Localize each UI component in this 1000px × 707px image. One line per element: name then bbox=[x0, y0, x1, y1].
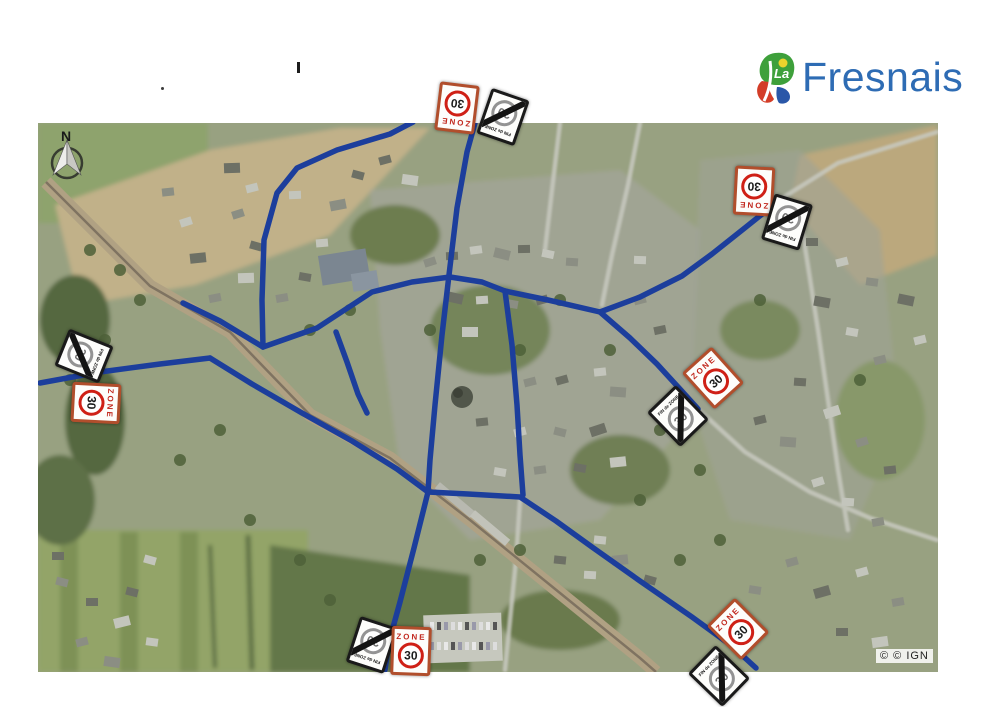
building bbox=[584, 571, 596, 580]
town-logo: La Fresnais bbox=[750, 50, 963, 106]
zone-label: ZONE bbox=[738, 200, 769, 211]
zone-label: ZONE bbox=[440, 116, 471, 129]
parked-car bbox=[493, 622, 497, 630]
building bbox=[866, 277, 879, 287]
parked-car bbox=[472, 642, 476, 650]
building bbox=[86, 598, 98, 606]
building bbox=[146, 637, 159, 647]
building bbox=[842, 498, 855, 507]
tree bbox=[634, 494, 646, 506]
building bbox=[566, 258, 579, 267]
speed-30-disc: 30 bbox=[443, 89, 472, 118]
tree bbox=[474, 554, 486, 566]
zone-30-entry-sign: ZONE30 bbox=[70, 382, 121, 425]
tree bbox=[674, 554, 686, 566]
parked-car bbox=[437, 622, 441, 630]
parked-car bbox=[479, 642, 483, 650]
building bbox=[224, 163, 240, 174]
logo-la-label: La bbox=[774, 66, 789, 81]
building bbox=[476, 296, 489, 305]
tree bbox=[84, 244, 96, 256]
tree bbox=[214, 424, 226, 436]
parked-car bbox=[444, 642, 448, 650]
building bbox=[289, 191, 301, 199]
parked-car bbox=[493, 642, 497, 650]
speed-30-disc: 30 bbox=[397, 642, 424, 669]
building bbox=[836, 628, 848, 636]
building bbox=[594, 535, 607, 544]
building bbox=[162, 187, 175, 196]
building bbox=[554, 555, 567, 564]
building bbox=[634, 256, 646, 264]
building bbox=[794, 378, 807, 387]
building bbox=[470, 245, 483, 255]
church bbox=[451, 386, 473, 408]
tree bbox=[714, 534, 726, 546]
tree bbox=[174, 454, 186, 466]
end-zone-label: FIN de ZONE bbox=[354, 652, 381, 665]
end-zone-slash bbox=[677, 393, 684, 445]
building bbox=[610, 386, 627, 397]
scan-artifact-tick bbox=[297, 62, 300, 73]
building bbox=[806, 238, 818, 246]
building bbox=[534, 465, 547, 475]
building bbox=[476, 417, 489, 426]
building bbox=[316, 238, 329, 247]
zone-label: ZONE bbox=[396, 632, 427, 642]
supermarket-parking bbox=[423, 613, 503, 664]
building bbox=[780, 436, 797, 447]
town-logo-emblem: La bbox=[750, 50, 800, 106]
zone-30-entry-sign: ZONE30 bbox=[390, 626, 432, 676]
building bbox=[518, 245, 530, 253]
building bbox=[190, 252, 207, 264]
end-zone-slash bbox=[719, 653, 726, 705]
speed-30-disc: 30 bbox=[741, 173, 768, 200]
parked-car bbox=[458, 642, 462, 650]
tree bbox=[424, 324, 436, 336]
logo-town-name: Fresnais bbox=[802, 50, 963, 104]
zone-30-entry-sign: ZONE30 bbox=[434, 81, 480, 135]
tree bbox=[244, 514, 256, 526]
building bbox=[238, 273, 254, 284]
parked-car bbox=[486, 622, 490, 630]
parked-car bbox=[486, 642, 490, 650]
parked-car bbox=[465, 642, 469, 650]
parked-car bbox=[444, 622, 448, 630]
scan-artifact-dot bbox=[161, 87, 164, 90]
tree bbox=[694, 464, 706, 476]
ign-attribution: © © IGN bbox=[876, 649, 933, 663]
parked-car bbox=[479, 622, 483, 630]
tree bbox=[114, 264, 126, 276]
parked-car bbox=[437, 642, 441, 650]
tree bbox=[134, 294, 146, 306]
parked-car bbox=[451, 622, 455, 630]
tree bbox=[514, 544, 526, 556]
building bbox=[610, 456, 627, 468]
end-zone-label: FIN de ZONE bbox=[769, 229, 796, 241]
building bbox=[594, 367, 607, 376]
zone-label: ZONE bbox=[105, 388, 116, 419]
building bbox=[462, 327, 478, 337]
tree bbox=[754, 294, 766, 306]
building bbox=[884, 465, 897, 474]
tree bbox=[294, 554, 306, 566]
tree bbox=[604, 344, 616, 356]
parked-car bbox=[458, 622, 462, 630]
tree bbox=[324, 594, 336, 606]
speed-30-disc: 30 bbox=[78, 389, 105, 416]
parked-car bbox=[451, 642, 455, 650]
tree bbox=[854, 374, 866, 386]
building bbox=[52, 552, 64, 560]
tree bbox=[514, 344, 526, 356]
parked-car bbox=[465, 622, 469, 630]
parked-car bbox=[472, 622, 476, 630]
